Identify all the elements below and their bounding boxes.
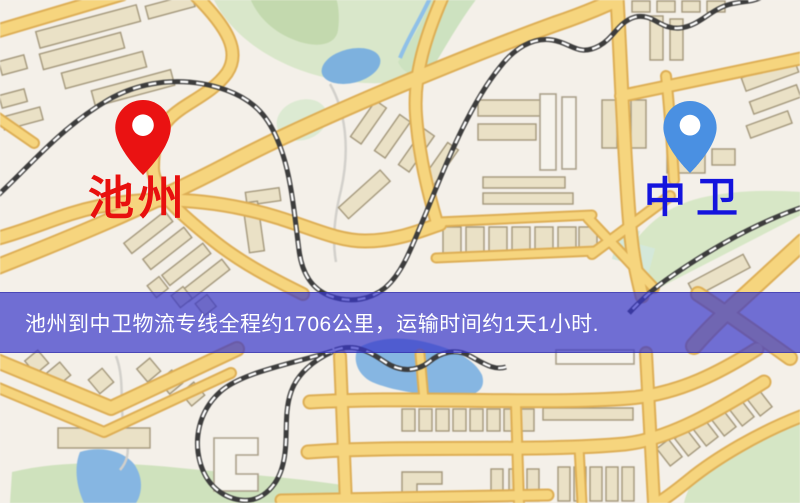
origin-pin-icon[interactable] bbox=[115, 100, 171, 175]
map-canvas[interactable] bbox=[0, 0, 800, 503]
destination-pin-icon[interactable] bbox=[663, 101, 717, 173]
route-banner: 池州到中卫物流专线全程约1706公里，运输时间约1天1小时. bbox=[0, 292, 800, 353]
route-banner-text: 池州到中卫物流专线全程约1706公里，运输时间约1天1小时. bbox=[25, 308, 599, 338]
logistics-route-map: 池州 中卫 池州到中卫物流专线全程约1706公里，运输时间约1天1小时. bbox=[0, 0, 800, 503]
origin-label: 池州 bbox=[88, 176, 188, 222]
destination-label: 中卫 bbox=[644, 178, 748, 220]
